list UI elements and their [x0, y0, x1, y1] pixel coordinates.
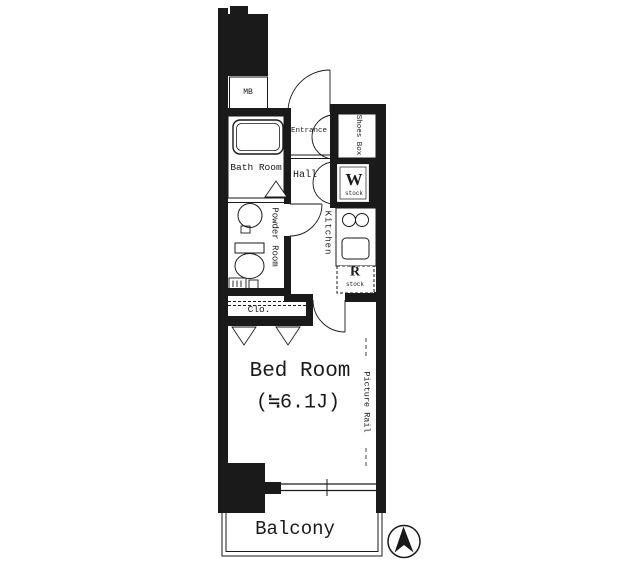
bath-wall-line [228, 198, 284, 203]
bathtub-icon [233, 120, 283, 154]
bedroom-door-arc [313, 300, 345, 332]
toilet-icon [235, 243, 264, 279]
hall-label: Hall [293, 171, 317, 182]
closet-bifold-doors [232, 327, 300, 345]
picture-rail-label: Picture Rail [362, 371, 371, 432]
kitchen-label: Kitchen [322, 211, 331, 256]
balcony-label: Balcony [255, 520, 335, 540]
bedroom-size-label: (≒6.1J) [256, 393, 340, 414]
refrigerator-sub-label: stock [346, 282, 364, 288]
bedroom-label: Bed Room [250, 361, 351, 383]
washbasin-icon [238, 204, 262, 234]
floor-plan-drawing [0, 0, 640, 569]
bath-room-label: Bath Room [230, 163, 281, 173]
pipe-shaft [228, 14, 268, 76]
washer-pan-icon [229, 278, 258, 289]
corner-column [218, 463, 265, 513]
north-arrow-icon [388, 526, 420, 558]
closet-label: Clo. [248, 305, 271, 315]
washer-label: W [346, 171, 363, 189]
powder-door-arc [290, 204, 322, 236]
entrance-door-arc [288, 70, 330, 112]
meter-box-label: MB [243, 89, 253, 97]
washer-sub-label: stock [345, 191, 363, 197]
entrance-label: Entrance [291, 128, 327, 136]
floor-plan: MB Bath Room Entrance Shoes Box Hall W s… [0, 0, 640, 569]
powder-room-label: Powder Room [269, 207, 278, 266]
balcony-window [281, 479, 376, 496]
shoes-box-label: Shoes Box [353, 114, 361, 156]
refrigerator-label: R [350, 266, 360, 281]
